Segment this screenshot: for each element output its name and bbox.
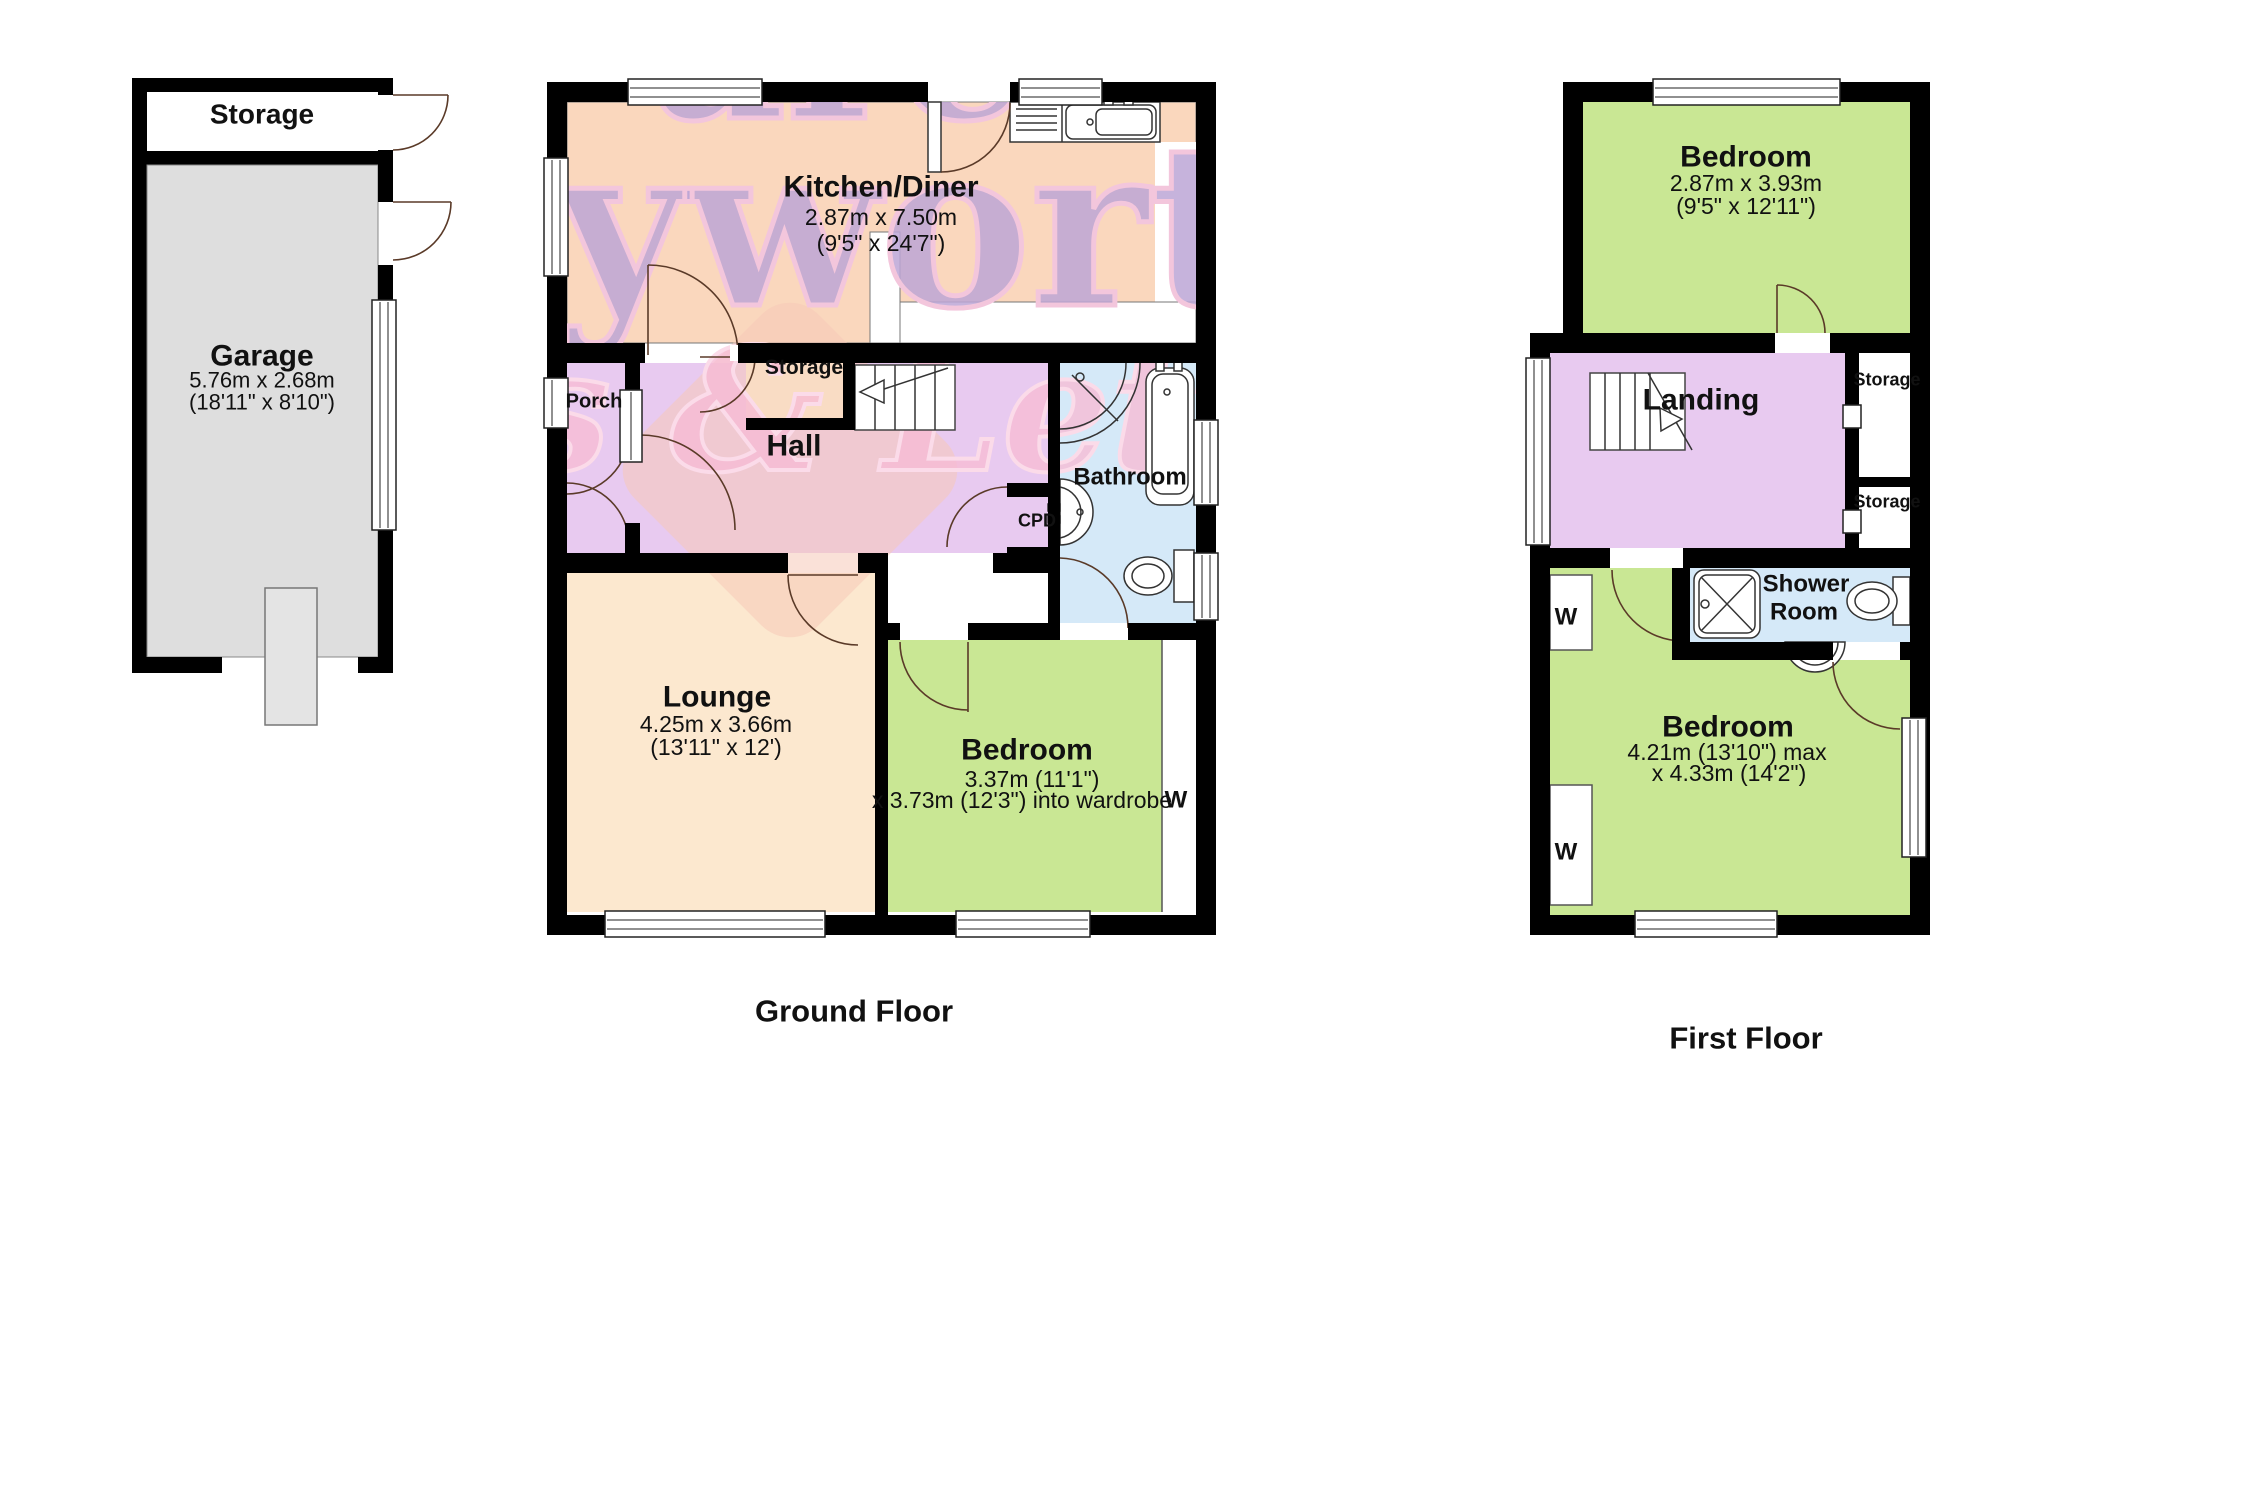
storage-room-label: Storage [210, 99, 314, 128]
kitchen-room-label: Kitchen/Diner [783, 171, 978, 203]
bedroom-dim-line2: x 3.73m (12'3") into wardrobe [872, 788, 1172, 812]
porch-room-label: Porch [566, 392, 623, 413]
shower-room-label-line2: Room [1770, 599, 1838, 624]
bedroom-front-dim-metric: 2.87m x 3.93m [1670, 171, 1822, 195]
garage-dim-imperial: (18'11" x 8'10") [189, 390, 335, 413]
landing-room-label: Landing [1643, 384, 1760, 416]
wardrobe-bottom-label: W [1555, 839, 1578, 864]
lounge-dim-metric: 4.25m x 3.66m [640, 712, 792, 736]
first-floor-caption: First Floor [1669, 1023, 1822, 1056]
storage-upper-label: Storage [1853, 371, 1920, 390]
wardrobe-top-label: W [1555, 604, 1578, 629]
door-arc-icon [393, 202, 451, 260]
garage-door-icon [265, 588, 317, 725]
window-icon [372, 300, 396, 530]
shower-tray-icon [1694, 570, 1760, 638]
cpd-label: CPD [1018, 512, 1056, 531]
stairs-icon [855, 365, 955, 430]
storage-lower-label: Storage [1853, 493, 1920, 512]
shower-room-label-line1: Shower [1763, 571, 1850, 596]
bathroom-room-label: Bathroom [1073, 464, 1186, 489]
bedroom-rear-dim-line2: x 4.33m (14'2") [1652, 761, 1806, 785]
garage-dim-metric: 5.76m x 2.68m [189, 368, 335, 391]
bedroom-front-dim-imperial: (9'5" x 12'11") [1676, 194, 1816, 218]
kitchen-dim-imperial: (9'5" x 24'7") [817, 231, 946, 255]
bedroom-front-label: Bedroom [1680, 141, 1812, 173]
floorplan-drawing: are yworth s & Lettings [0, 0, 2256, 1504]
wardrobe-label: W [1165, 787, 1188, 812]
kitchen-dim-metric: 2.87m x 7.50m [805, 205, 957, 229]
storage-closet-label: Storage [765, 357, 843, 379]
lounge-dim-imperial: (13'11" x 12') [650, 735, 782, 759]
hall-room-label: Hall [766, 430, 821, 462]
bedroom-room-label: Bedroom [961, 734, 1093, 766]
floorplan-canvas: are yworth s & Lettings [0, 0, 2256, 1504]
door-arc-icon [393, 95, 448, 150]
lounge-room-label: Lounge [663, 681, 771, 713]
ground-floor-caption: Ground Floor [755, 996, 953, 1029]
